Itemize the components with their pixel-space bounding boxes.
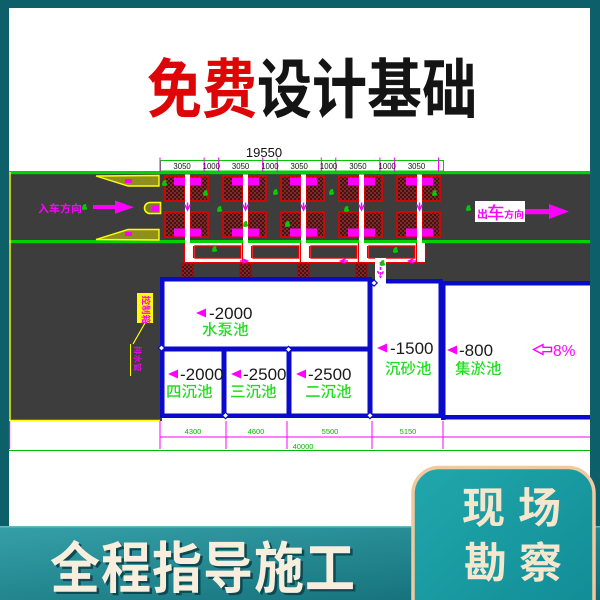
svg-text:1000: 1000	[261, 162, 279, 171]
svg-text:1000: 1000	[203, 162, 221, 171]
svg-text:-2000: -2000	[180, 365, 223, 384]
svg-text:1000: 1000	[320, 162, 338, 171]
svg-text:4600: 4600	[248, 427, 265, 436]
svg-text:3050: 3050	[232, 162, 250, 171]
svg-text:40000: 40000	[293, 442, 314, 451]
svg-text:1000: 1000	[379, 162, 397, 171]
svg-text:4300: 4300	[185, 427, 202, 436]
svg-text:3050: 3050	[173, 162, 191, 171]
svg-text:3050: 3050	[291, 162, 309, 171]
svg-text:-1500: -1500	[390, 339, 433, 358]
svg-text:-2500: -2500	[308, 365, 351, 384]
svg-text:3050: 3050	[349, 162, 367, 171]
svg-text:5500: 5500	[322, 427, 339, 436]
svg-text:-2000: -2000	[209, 304, 252, 323]
svg-text:19550: 19550	[246, 145, 282, 160]
svg-text:8%: 8%	[553, 343, 576, 360]
svg-text:5150: 5150	[400, 427, 417, 436]
svg-text:-2500: -2500	[243, 365, 286, 384]
svg-text:-800: -800	[459, 341, 493, 360]
svg-text:3050: 3050	[408, 162, 426, 171]
